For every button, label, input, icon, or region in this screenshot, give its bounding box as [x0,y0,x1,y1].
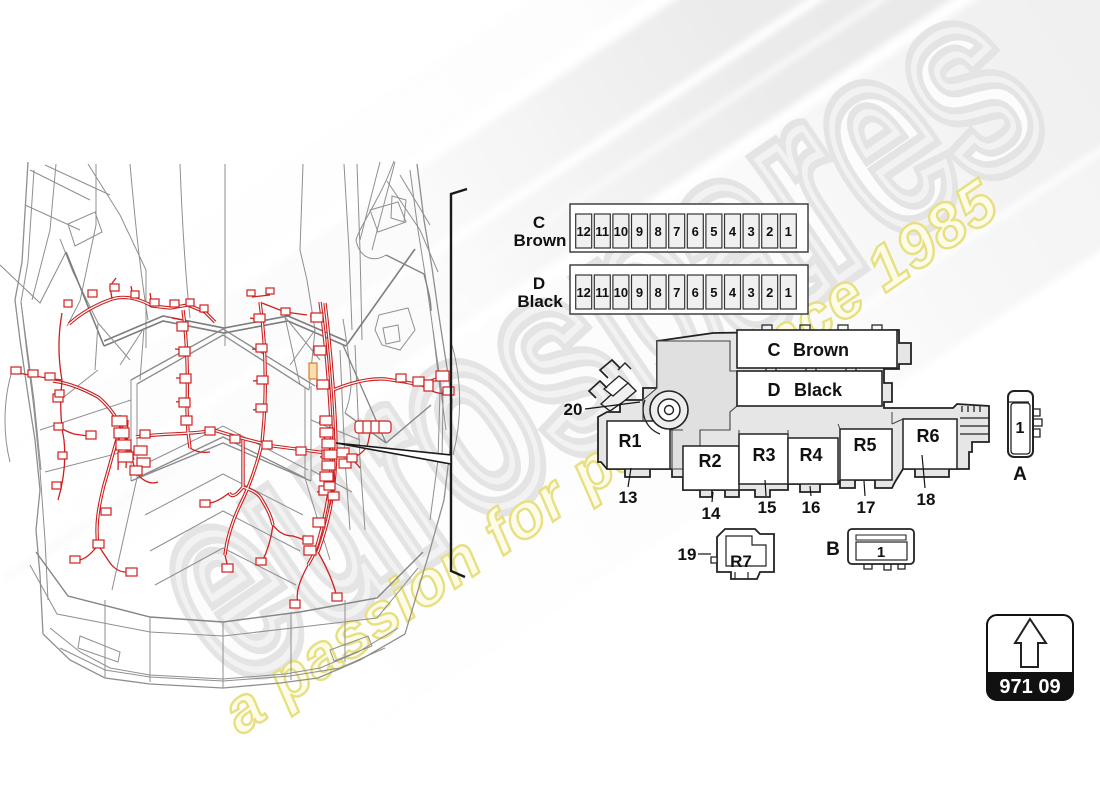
svg-text:Brown: Brown [514,231,567,250]
svg-text:16: 16 [802,498,821,517]
svg-text:12: 12 [576,285,590,300]
svg-text:D: D [768,380,781,400]
svg-text:4: 4 [729,224,737,239]
svg-text:C: C [768,340,781,360]
svg-text:12: 12 [576,224,590,239]
svg-text:1: 1 [877,544,885,561]
svg-text:R3: R3 [752,445,775,465]
svg-text:5: 5 [710,285,717,300]
svg-text:6: 6 [692,285,699,300]
svg-text:Black: Black [517,292,563,311]
svg-text:10: 10 [614,224,628,239]
svg-text:3: 3 [747,285,754,300]
svg-text:Brown: Brown [793,340,849,360]
svg-text:5: 5 [710,224,717,239]
svg-text:15: 15 [758,498,777,517]
svg-text:C: C [533,213,545,232]
svg-text:20: 20 [564,400,583,419]
svg-text:A: A [1013,464,1027,485]
svg-text:8: 8 [654,285,661,300]
svg-text:11: 11 [595,285,609,300]
svg-text:18: 18 [917,490,936,509]
svg-text:9: 9 [636,224,643,239]
svg-text:7: 7 [673,285,680,300]
svg-text:2: 2 [766,224,773,239]
svg-text:11: 11 [595,224,609,239]
svg-text:Black: Black [794,380,843,400]
svg-text:B: B [826,539,840,560]
svg-text:9: 9 [636,285,643,300]
svg-text:4: 4 [729,285,737,300]
svg-text:R5: R5 [853,435,876,455]
svg-text:D: D [533,274,545,293]
svg-text:7: 7 [673,224,680,239]
svg-text:R7: R7 [730,552,752,571]
svg-text:3: 3 [747,224,754,239]
svg-text:1: 1 [1016,420,1025,437]
svg-text:13: 13 [619,488,638,507]
svg-text:R2: R2 [698,451,721,471]
svg-text:19: 19 [678,545,697,564]
svg-text:10: 10 [614,285,628,300]
svg-text:R6: R6 [916,426,939,446]
svg-text:971 09: 971 09 [999,676,1060,698]
svg-text:1: 1 [785,224,792,239]
svg-text:8: 8 [654,224,661,239]
svg-text:14: 14 [702,504,721,523]
svg-text:1: 1 [785,285,792,300]
svg-text:2: 2 [766,285,773,300]
svg-text:6: 6 [692,224,699,239]
svg-text:R1: R1 [618,431,641,451]
svg-text:R4: R4 [799,445,822,465]
svg-text:17: 17 [857,498,876,517]
